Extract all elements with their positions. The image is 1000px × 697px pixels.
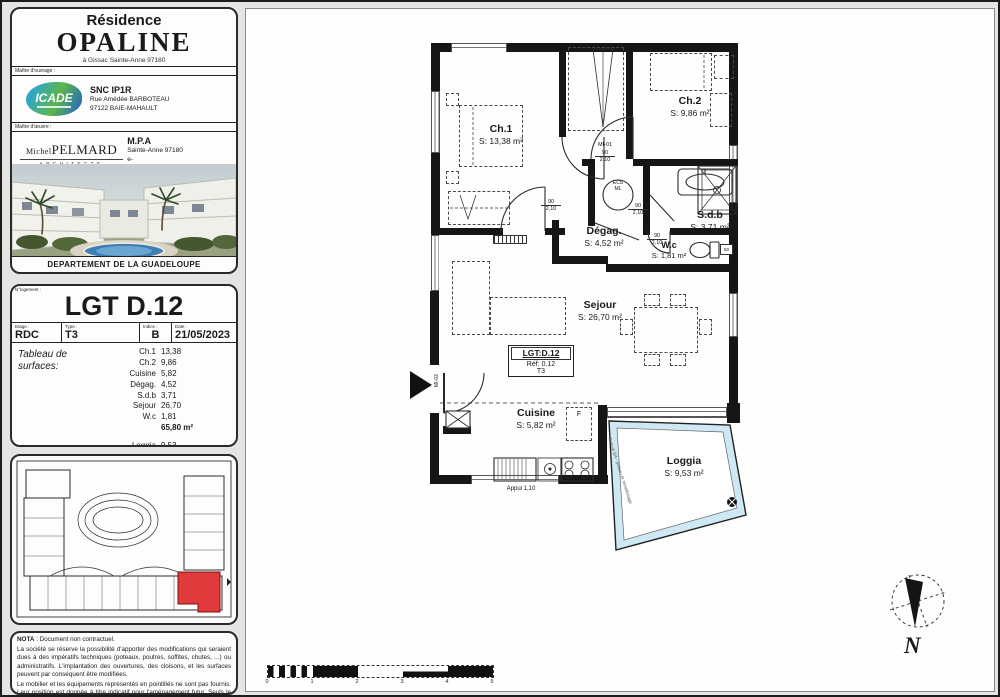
surface-row: Dégag.4,52 bbox=[110, 380, 195, 391]
unit-block: N°logement : LGT D.12 Etage : RDC Type :… bbox=[10, 284, 238, 447]
architect-city: Sainte-Anne 97180 bbox=[127, 147, 236, 156]
wall-segment bbox=[443, 426, 471, 434]
scale-segment bbox=[448, 666, 493, 677]
nota-paragraph-2: Le mobilier et les équipements représent… bbox=[17, 681, 231, 695]
chair bbox=[644, 354, 660, 366]
bed-ch2 bbox=[650, 53, 712, 91]
window bbox=[729, 145, 738, 203]
room-label-loggia: Loggia S: 9,53 m² bbox=[634, 455, 734, 478]
wall-segment bbox=[552, 256, 608, 264]
architect-company: M.P.A bbox=[127, 135, 236, 147]
bay-window bbox=[607, 407, 727, 418]
surface-row: W.c1,81 bbox=[110, 412, 195, 423]
wall-segment bbox=[626, 43, 633, 159]
project-title: Résidence OPALINE à Gissac Sainte-Anne 9… bbox=[12, 12, 236, 64]
closet bbox=[568, 47, 624, 131]
field-date: Date : 21/05/2023 bbox=[172, 323, 236, 342]
owner-strip-label: Maître d'ouvrage : bbox=[12, 66, 236, 76]
wall-segment bbox=[598, 405, 607, 484]
project-address: à Gissac Sainte-Anne 97180 bbox=[12, 57, 236, 64]
pelmard-logo: MichelPELMARD ARCHITECTE bbox=[20, 142, 123, 166]
window bbox=[729, 293, 738, 337]
door-dim: 90 2,10 bbox=[541, 199, 561, 212]
chair bbox=[670, 354, 686, 366]
scale-segment bbox=[358, 666, 403, 677]
title-block: Résidence OPALINE à Gissac Sainte-Anne 9… bbox=[10, 7, 238, 274]
door-dim: 90 2,10 bbox=[647, 233, 667, 246]
window bbox=[431, 91, 440, 153]
highlighted-unit bbox=[178, 572, 220, 612]
architect-strip-label: Maître d'œuvre : bbox=[12, 122, 236, 132]
surface-loggia: Loggia9,53 bbox=[110, 441, 195, 447]
scale-bar: 0 1 2 3 4 5 bbox=[261, 663, 509, 689]
site-plan bbox=[10, 454, 238, 625]
surfaces-table: Tableau de surfaces: Ch.113,38 Ch.29,86 … bbox=[12, 343, 236, 447]
wall-segment bbox=[559, 43, 566, 137]
icade-logo-text: ICADE bbox=[35, 91, 72, 105]
north-arrow-icon bbox=[890, 575, 946, 627]
room-label-sdb: S.d.b S: 3,71 m² bbox=[670, 209, 750, 232]
door-dim: 90 2,10 bbox=[595, 150, 615, 163]
project-name: OPALINE bbox=[12, 29, 236, 56]
window bbox=[431, 235, 439, 291]
owner-row: ICADE SNC IP1R Rue Amédée BARBOTEAU 9712… bbox=[12, 76, 236, 122]
icade-logo: ICADE bbox=[26, 82, 82, 116]
owner-info: SNC IP1R Rue Amédée BARBOTEAU 97122 BAIE… bbox=[90, 84, 169, 114]
chair bbox=[699, 319, 712, 335]
wall-segment bbox=[729, 337, 738, 403]
washbasin-icon bbox=[678, 169, 732, 195]
nota-line1: NOTA : Document non contractuel. bbox=[17, 636, 231, 644]
unit-tag: LGT:D.12 Réf: 0.12 T3 bbox=[508, 345, 574, 377]
surfaces-title: Tableau de surfaces: bbox=[12, 343, 110, 447]
door-ref-mi01: MI-01 bbox=[587, 142, 623, 148]
room-label-ch1: Ch.1 S: 13,38 m² bbox=[449, 123, 553, 146]
unit-fields: Etage : RDC Type : T3 Indice : B Date : … bbox=[12, 322, 236, 343]
surface-row: Ch.29,86 bbox=[110, 358, 195, 369]
pelmard-last: PELMARD bbox=[52, 142, 118, 157]
surface-row: Ch.113,38 bbox=[110, 347, 195, 358]
scale-segment bbox=[403, 666, 448, 677]
wall-segment bbox=[633, 159, 738, 166]
room-label-degag: Dégag. S: 4,52 m² bbox=[558, 225, 650, 248]
surface-total: 65,80 m² bbox=[110, 423, 195, 434]
surface-row: Cuisine5,82 bbox=[110, 369, 195, 380]
floor-plan-sheet: Ch.1 S: 13,38 m² Ch.2 S: 9,86 m² S.d.b S… bbox=[245, 8, 995, 692]
chair bbox=[670, 294, 686, 306]
entry-arrow-icon bbox=[410, 371, 432, 399]
room-label-sejour: Sejour S: 26,70 m² bbox=[544, 299, 656, 322]
door-dim: 90 2,10 bbox=[628, 203, 648, 216]
field-type: Type : T3 bbox=[62, 323, 140, 342]
field-indice: Indice : B bbox=[140, 323, 172, 342]
north-letter: N bbox=[904, 633, 921, 659]
residence-photo bbox=[12, 164, 236, 256]
site-plan-art bbox=[12, 456, 236, 623]
wall-segment bbox=[606, 264, 738, 272]
nightstand bbox=[446, 93, 459, 106]
door-ref-mi03: MI-03 bbox=[434, 374, 440, 387]
owner-city: 97122 BAIE-MAHAULT bbox=[90, 105, 169, 114]
wall-post bbox=[727, 403, 740, 423]
owner-company: SNC IP1R bbox=[90, 84, 169, 96]
appui-label: Appui 1,10 bbox=[486, 486, 556, 492]
nightstand bbox=[446, 171, 459, 184]
nota-block: NOTA : Document non contractuel. La soci… bbox=[10, 631, 238, 695]
wall-segment bbox=[588, 159, 595, 226]
loggia-edge-label: Relevé BA - poteau et remplissage bbox=[607, 437, 633, 504]
surface-row: Sejour26,70 bbox=[110, 401, 195, 412]
sofa bbox=[452, 261, 490, 335]
wall-segment bbox=[430, 291, 439, 365]
icade-logo-underline bbox=[37, 106, 71, 108]
wall-segment bbox=[431, 228, 503, 235]
window bbox=[451, 43, 507, 52]
radiator bbox=[493, 235, 527, 244]
drawing-sheet: Résidence OPALINE à Gissac Sainte-Anne 9… bbox=[0, 0, 1000, 697]
field-etage: Etage : RDC bbox=[12, 323, 62, 342]
surface-row: S.d.b3,71 bbox=[110, 391, 195, 402]
room-label-ch2: Ch.2 S: 9,86 m² bbox=[634, 95, 746, 118]
drain-icon bbox=[727, 497, 737, 507]
ecs-label: ECS ML bbox=[603, 181, 633, 193]
nightstand bbox=[714, 55, 734, 79]
kitchen-window bbox=[471, 475, 559, 484]
owner-street: Rue Amédée BARBOTEAU bbox=[90, 96, 169, 105]
scale-segment bbox=[268, 666, 313, 677]
loggia-floor bbox=[609, 421, 746, 550]
door-arc-entry bbox=[444, 373, 484, 413]
photo-caption: DEPARTEMENT DE LA GUADELOUPE bbox=[12, 256, 236, 274]
residence-photo-art bbox=[12, 164, 236, 256]
wall-segment bbox=[643, 166, 650, 228]
scale-segment bbox=[313, 666, 358, 677]
unit-name: LGT D.12 bbox=[12, 292, 236, 320]
pelmard-first: Michel bbox=[26, 147, 52, 156]
wardrobe-ch1 bbox=[448, 191, 510, 225]
wall-segment bbox=[431, 43, 440, 91]
fridge-label: F bbox=[566, 411, 592, 418]
wall-segment bbox=[431, 153, 440, 235]
wall-segment bbox=[430, 413, 439, 484]
wc-tag: 50 bbox=[720, 244, 733, 255]
nota-paragraph-1: La société se réserve la possibilité d'a… bbox=[17, 646, 231, 679]
